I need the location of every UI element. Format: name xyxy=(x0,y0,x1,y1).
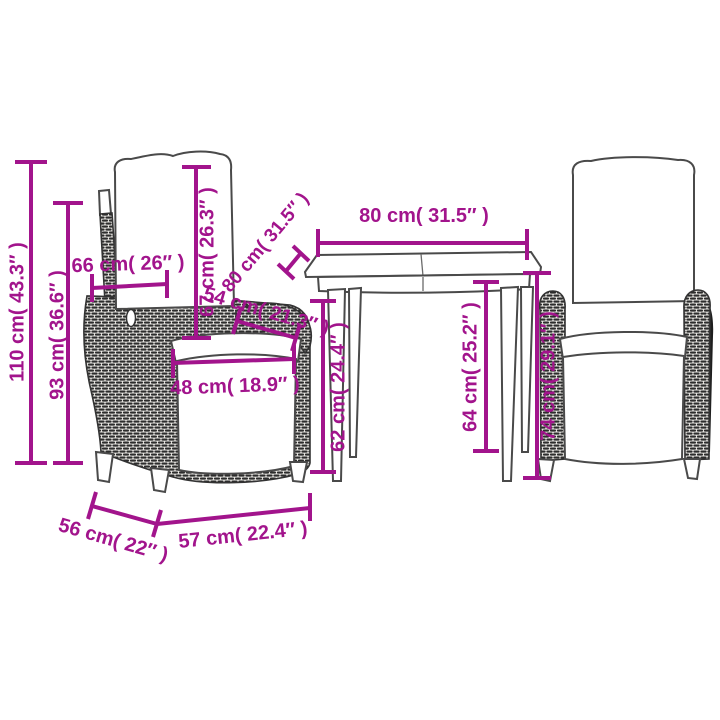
dim-chair-total-height: 110 cm( 43.3″ ) xyxy=(6,162,47,463)
dim-armrest-height-label: 74 cm( 29.1″ ) xyxy=(537,311,559,441)
dimension-diagram: 110 cm( 43.3″ ) 93 cm( 36.6″ ) 66 cm( 26… xyxy=(0,0,720,720)
table-leg-front-right xyxy=(501,287,518,481)
table-leg-back-left xyxy=(349,288,361,457)
dim-table-width-label: 80 cm( 31.5″ ) xyxy=(359,205,489,227)
left-chair-leg-front xyxy=(96,452,113,482)
dim-chair-back-height-label: 93 cm( 36.6″ ) xyxy=(46,270,68,400)
right-chair-armrest-right xyxy=(684,290,710,460)
table-leg-back-right xyxy=(521,287,533,452)
right-chair-front-panel xyxy=(563,352,684,464)
left-chair-front-panel xyxy=(177,354,296,473)
right-chair-back-cushion xyxy=(573,157,695,303)
left-chair-recline-strap xyxy=(99,190,111,215)
dim-chair-back-width-label: 66 cm( 26″ ) xyxy=(71,251,185,277)
right-chair xyxy=(538,157,713,481)
right-chair-leg-right xyxy=(684,459,700,479)
dim-table-height-label: 64 cm( 25.2″ ) xyxy=(459,302,481,432)
dim-seat-width-label: 48 cm( 18.9″ ) xyxy=(170,373,300,400)
dim-chair-total-height-label: 110 cm( 43.3″ ) xyxy=(6,242,28,382)
diagram-canvas: 110 cm( 43.3″ ) 93 cm( 36.6″ ) 66 cm( 26… xyxy=(0,0,720,720)
dim-chair-front-width: 57 cm( 22.4″ ) xyxy=(157,493,310,553)
dim-chair-front-width-label: 57 cm( 22.4″ ) xyxy=(177,518,308,553)
dim-seat-depth: 56 cm( 22″ ) xyxy=(56,492,171,566)
left-chair-leg-right xyxy=(290,462,307,482)
dim-table-clearance-label: 62 cm( 24.4″ ) xyxy=(327,322,349,452)
left-chair-leg-mid xyxy=(151,468,169,492)
left-chair-recline-slot xyxy=(127,310,136,327)
dim-chair-back-height: 93 cm( 36.6″ ) xyxy=(46,203,83,463)
dim-table-height: 64 cm( 25.2″ ) xyxy=(459,282,499,451)
